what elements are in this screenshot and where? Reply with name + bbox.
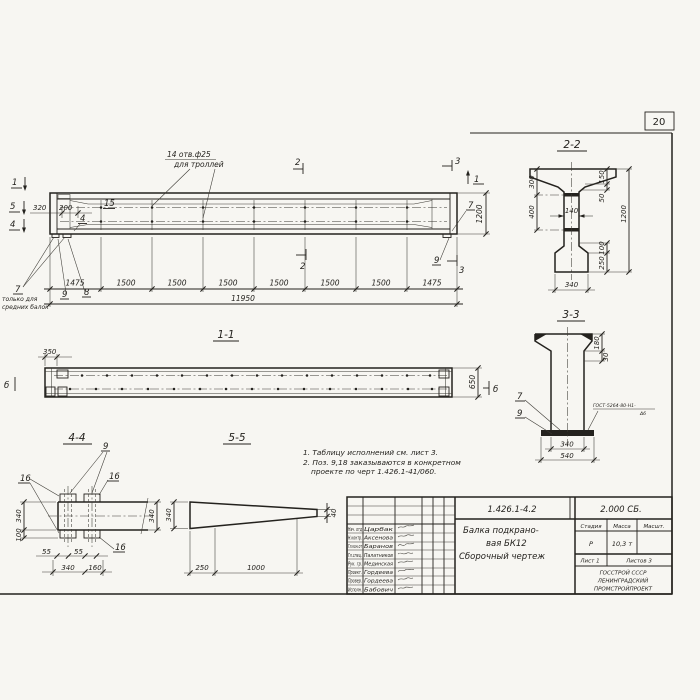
sec3-dims-bottom: 340 540	[535, 437, 600, 463]
section-view-2-2: 2-2 300 400 140 150 50 100 250 1200	[528, 139, 632, 293]
pos-7-left: 7	[15, 285, 21, 295]
role-label: Провер.	[348, 579, 362, 585]
mark-1-left: 1	[12, 178, 17, 188]
col-mass: Масса	[613, 524, 631, 530]
name-label: Аксенова	[363, 536, 393, 542]
mark-6-left: б	[4, 381, 9, 391]
org-line3: ПРОМСТРОЙПРОЕКТ	[594, 586, 653, 593]
name-label: Царбак	[364, 527, 393, 533]
signature-scribble	[398, 569, 414, 571]
section-marks-left: 1 5 4	[9, 177, 27, 233]
sec2-dims-left: 300 400	[528, 166, 540, 232]
section-view-4-4: 4-4 9 16 16 16 340 100 340 55 55 34	[15, 432, 161, 576]
dim-height-1200: 1200	[475, 204, 484, 223]
dim-100: 100	[598, 241, 606, 255]
pos-7-sec3: 7	[517, 392, 523, 402]
name-label: Баранов	[364, 544, 393, 550]
signature-scribble	[398, 553, 413, 554]
name-label: Бабович	[364, 588, 393, 594]
main-elevation-view: 14 отв.ф25 для троллей 1 5 4 1 2 2 3 3 3…	[2, 150, 490, 311]
holes-note-line1: 14 отв.ф25	[167, 150, 211, 159]
signature-scribble	[398, 561, 413, 563]
notes-block: 1. Таблицу исполнений см. лист 3. 2. Поз…	[303, 448, 461, 476]
name-label: Гордеева	[364, 579, 393, 585]
section-marks-right: 1 2 2 3 3	[293, 157, 484, 276]
product-title-line3: Сборочный чертеж	[459, 552, 545, 562]
dim-30: 30	[602, 352, 610, 361]
mark-1-right: 1	[474, 175, 479, 185]
dim-50: 50	[598, 193, 606, 202]
name-label: Мединская	[364, 562, 393, 568]
sec5-dim-right: 40	[317, 503, 338, 523]
segment-dim: 1500	[320, 279, 339, 288]
pos-9-right: 9	[434, 256, 439, 266]
name-label: Гордеева	[364, 570, 393, 576]
dim-250: 250	[195, 564, 209, 572]
drawing-canvas: 20 14 отв.ф25 для троллей 1 5 4	[0, 0, 700, 700]
weld-note-line2: Δ6	[639, 411, 646, 417]
hole-axes	[101, 200, 407, 230]
col-scale: Масшт.	[643, 524, 664, 530]
dim-1200-right: 1200	[457, 190, 490, 236]
segment-dim: 1500	[218, 279, 237, 288]
dim-650: 650	[452, 365, 482, 399]
pos-15: 15	[104, 199, 115, 209]
sheets-info: Листов 3	[625, 559, 652, 565]
dim-140: 140	[565, 207, 579, 215]
product-title-line1: Балка подкрано-	[463, 526, 539, 536]
mark-3-bottom: 3	[459, 266, 464, 276]
org-line1: ГОССТРОЙ СССР	[600, 570, 647, 577]
sec5-dim-left: 340	[165, 499, 188, 531]
dim-55-b: 55	[74, 548, 83, 556]
dim-350-text: 350	[43, 348, 57, 356]
sec4-dims-bottom: 55 55 340 160	[36, 548, 112, 576]
dim-chain: 1475 1500 1500 1500 1500 1500 1500 1475 …	[44, 237, 463, 307]
product-title-line2: вая БК12	[486, 539, 527, 549]
dim-1000: 1000	[247, 564, 265, 572]
section-view-1-1: 1-1 350 650 б б	[4, 329, 498, 400]
dim-40: 40	[330, 508, 338, 517]
segment-dim: 1500	[371, 279, 390, 288]
name-label: Палатников	[364, 553, 393, 559]
dim-340-left: 340	[15, 509, 23, 523]
dim-1200-sec2: 1200	[620, 205, 628, 223]
page-number-box: 20	[645, 112, 674, 130]
mark-2-bottom: 2	[300, 262, 305, 272]
section-2-2-title: 2-2	[563, 139, 580, 151]
mark-4-left: 4	[10, 220, 15, 230]
role-label: Гл.спец.	[348, 553, 362, 559]
pos-9-left: 9	[62, 290, 67, 300]
segment-dim: 1475	[422, 279, 441, 288]
dim-250: 250	[598, 256, 606, 270]
dim-150: 150	[598, 170, 606, 184]
dim-300: 300	[528, 175, 536, 189]
note-line-2: 2. Поз. 9,18 заказываются в конкретном	[303, 458, 461, 467]
dim-400: 400	[528, 205, 536, 219]
sec4-dim-right: 340	[148, 499, 161, 532]
role-label: Н.контр.	[348, 536, 362, 542]
weld-callout: ГОСТ-5264-80-Н1- Δ6	[588, 403, 655, 430]
stage-value: Р	[589, 540, 593, 548]
signature-scribble	[398, 543, 414, 546]
pos-9-sec3: 9	[517, 409, 522, 419]
dim-total-length: 11950	[231, 294, 255, 303]
section-3-3-title: 3-3	[562, 309, 579, 321]
drawing-sheet: 20 14 отв.ф25 для троллей 1 5 4	[0, 0, 700, 700]
segment-dim: 1500	[167, 279, 186, 288]
sec2-dims-right: 150 50 100 250 1200	[579, 166, 632, 274]
mark-2-top: 2	[295, 158, 300, 168]
dim-340-right: 340	[148, 509, 156, 523]
dim-340-sec3: 340	[560, 441, 574, 449]
pos-8: 8	[84, 288, 90, 298]
mark-3-top: 3	[455, 157, 460, 167]
role-label: Рук. гр.	[348, 562, 362, 568]
role-label: Нач. отд	[348, 527, 362, 533]
org-line2: ЛЕНИНГРАДСКИЙ	[597, 578, 648, 585]
pos-16-bottom: 16	[115, 543, 126, 553]
role-label: Проект.	[348, 570, 362, 576]
section-5-5-title: 5-5	[228, 432, 245, 444]
pos-16-right: 16	[109, 472, 120, 482]
signature-scribble	[398, 578, 413, 580]
signature-scribble	[398, 525, 414, 528]
doc-number: 1.426.1-4.2	[487, 505, 536, 515]
dim-320: 320	[33, 204, 47, 212]
segment-dim: 1500	[116, 279, 135, 288]
dim-200: 200	[59, 204, 73, 212]
note-line-1: 1. Таблицу исполнений см. лист 3.	[303, 448, 438, 457]
mark-6-right: б	[493, 385, 498, 395]
dim-55-a: 55	[42, 548, 51, 556]
signature-scribble	[398, 535, 414, 537]
dim-650-text: 650	[468, 375, 477, 390]
mass-value: 10,3 т	[612, 540, 633, 548]
dim-180: 180	[593, 336, 601, 350]
sheet-info: Лист 1	[579, 559, 599, 565]
weld-note-line1: ГОСТ-5264-80-Н1-	[593, 403, 636, 409]
pos-7-note-line1: только для	[2, 296, 38, 303]
pos-4: 4	[80, 214, 85, 224]
holes-callout: 14 отв.ф25 для троллей	[152, 150, 224, 218]
role-label: Исполн.	[348, 588, 362, 594]
section-1-1-title: 1-1	[217, 329, 234, 341]
dim-340-sec2: 340	[565, 281, 579, 289]
note-line-3: проекте по черт 1.426.1-41/060.	[311, 467, 436, 476]
section-4-4-title: 4-4	[68, 432, 85, 444]
col-stage: Стадия	[580, 524, 602, 530]
holes-note-line2: для троллей	[173, 160, 224, 169]
dim-340-sec5: 340	[165, 508, 173, 522]
segment-dim: 1475	[65, 279, 84, 288]
dim-100-sec4: 100	[15, 528, 23, 542]
pos-9-sec4: 9	[103, 442, 108, 452]
dim-160: 160	[88, 564, 102, 572]
role-label: Гл.кон.от	[348, 544, 362, 550]
pos-7-right: 7	[468, 201, 474, 211]
segment-dim: 1500	[269, 279, 288, 288]
pos-16-left: 16	[20, 474, 31, 484]
page-number: 20	[653, 117, 666, 128]
dim-340-bottom: 340	[61, 564, 75, 572]
signature-scribble	[398, 587, 413, 589]
doc-code: 2.000 СБ.	[600, 505, 642, 515]
dim-350: 350	[38, 348, 72, 366]
section-view-3-3: 3-3 180 30 7 9 ГОСТ-5264-80-Н1- Δ6 340 5…	[515, 309, 655, 463]
dim-540-sec3: 540	[560, 452, 574, 460]
pos7-note-left: 7 только для средних балок	[2, 237, 65, 311]
mark-5-left: 5	[10, 202, 15, 212]
pos-7-note-line2: средних балок	[2, 304, 49, 311]
title-block: Нач. отд Царбак Н.контр. Аксенова Гл.кон…	[347, 497, 672, 594]
